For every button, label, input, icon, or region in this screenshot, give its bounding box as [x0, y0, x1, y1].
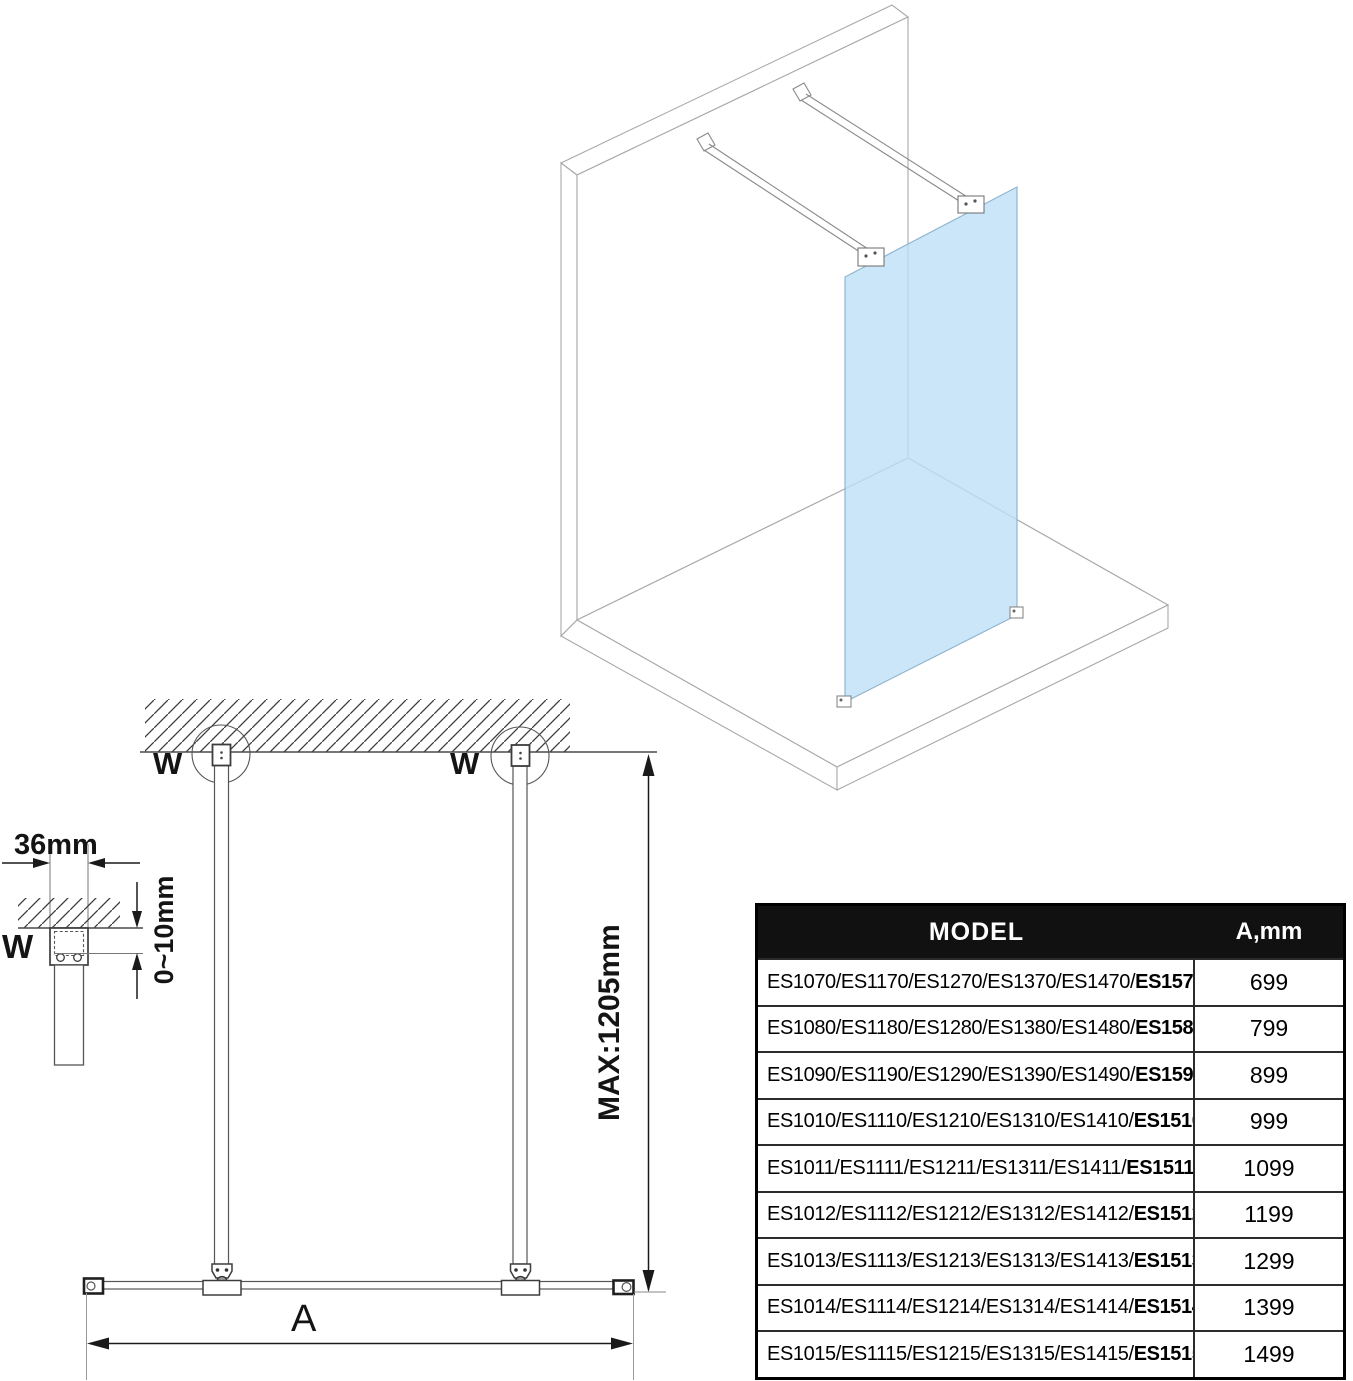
table-row: ES1014/ES1114/ES1214/ES1314/ES1414/ES151…	[758, 1284, 1343, 1331]
end-cap-right	[614, 1281, 667, 1295]
table-row: ES1012/ES1112/ES1212/ES1312/ES1412/ES151…	[758, 1191, 1343, 1238]
label-max-height: MAX:1205mm	[593, 925, 623, 1121]
a-value-cell: 799	[1195, 1007, 1343, 1052]
label-0-10mm: 0~10mm	[149, 874, 177, 986]
plan-bar-right	[513, 766, 527, 1264]
model-cell: ES1015/ES1115/ES1215/ES1315/ES1415/ES151…	[758, 1332, 1195, 1377]
model-cell: ES1011/ES1111/ES1211/ES1311/ES1411/ES151…	[758, 1146, 1195, 1191]
table-row: ES1010/ES1110/ES1210/ES1310/ES1410/ES151…	[758, 1098, 1343, 1145]
model-cell: ES1013/ES1113/ES1213/ES1313/ES1413/ES151…	[758, 1239, 1195, 1284]
isometric-view	[561, 5, 1168, 790]
a-value-cell: 1499	[1195, 1332, 1343, 1377]
model-cell: ES1014/ES1114/ES1214/ES1314/ES1414/ES151…	[758, 1286, 1195, 1331]
table-row: ES1015/ES1115/ES1215/ES1315/ES1415/ES151…	[758, 1330, 1343, 1377]
dimension-width-a	[87, 1338, 633, 1350]
label-36mm: 36mm	[14, 829, 98, 862]
wall-bracket-right	[512, 745, 530, 766]
table-header-a-mm: A,mm	[1195, 906, 1343, 958]
model-cell: ES1090/ES1190/ES1290/ES1390/ES1490/ES159…	[758, 1053, 1195, 1098]
model-spec-table: MODEL A,mm ES1070/ES1170/ES1270/ES1370/E…	[755, 903, 1346, 1380]
detail-bracket	[50, 928, 88, 965]
table-header-row: MODEL A,mm	[758, 906, 1343, 958]
table-row: ES1011/ES1111/ES1211/ES1311/ES1411/ES151…	[758, 1144, 1343, 1191]
end-cap-left	[84, 1279, 103, 1294]
wall-bracket-left	[213, 745, 231, 766]
installation-diagram-page: 36mm W 0~10mm W W MAX:1205mm A MODEL A,m…	[0, 0, 1353, 1381]
model-cell: ES1070/ES1170/ES1270/ES1370/ES1470/ES157…	[758, 960, 1195, 1005]
table-row: ES1013/ES1113/ES1213/ES1313/ES1413/ES151…	[758, 1237, 1343, 1284]
plan-bar-left	[215, 766, 229, 1265]
model-cell: ES1080/ES1180/ES1280/ES1380/ES1480/ES158…	[758, 1007, 1195, 1052]
a-value-cell: 699	[1195, 960, 1343, 1005]
detail-bar	[55, 965, 84, 1065]
glass-edge-bar	[87, 1282, 633, 1290]
bar-sleeve-left	[203, 1281, 241, 1296]
table-row: ES1080/ES1180/ES1280/ES1380/ES1480/ES158…	[758, 1005, 1343, 1052]
a-value-cell: 1099	[1195, 1146, 1343, 1191]
a-value-cell: 999	[1195, 1100, 1343, 1145]
model-cell: ES1010/ES1110/ES1210/ES1310/ES1410/ES151…	[758, 1100, 1195, 1145]
label-dim-a: A	[291, 1298, 316, 1341]
label-detail-w: W	[2, 928, 33, 966]
detail-wall-hatch	[18, 898, 120, 928]
plan-view	[84, 699, 666, 1380]
a-value-cell: 1199	[1195, 1193, 1343, 1238]
a-value-cell: 1399	[1195, 1286, 1343, 1331]
label-w-left: W	[153, 746, 182, 782]
model-cell: ES1012/ES1112/ES1212/ES1312/ES1412/ES151…	[758, 1193, 1195, 1238]
dimension-max-height	[643, 754, 655, 1292]
ceiling-hatch	[145, 699, 570, 752]
a-value-cell: 899	[1195, 1053, 1343, 1098]
table-row: ES1090/ES1190/ES1290/ES1390/ES1490/ES159…	[758, 1051, 1343, 1098]
table-header-model: MODEL	[758, 906, 1195, 958]
label-w-right: W	[450, 746, 479, 782]
dimension-0-10mm	[132, 882, 142, 999]
a-value-cell: 1299	[1195, 1239, 1343, 1284]
bar-sleeve-right	[502, 1281, 540, 1296]
table-row: ES1070/ES1170/ES1270/ES1370/ES1470/ES157…	[758, 958, 1343, 1005]
